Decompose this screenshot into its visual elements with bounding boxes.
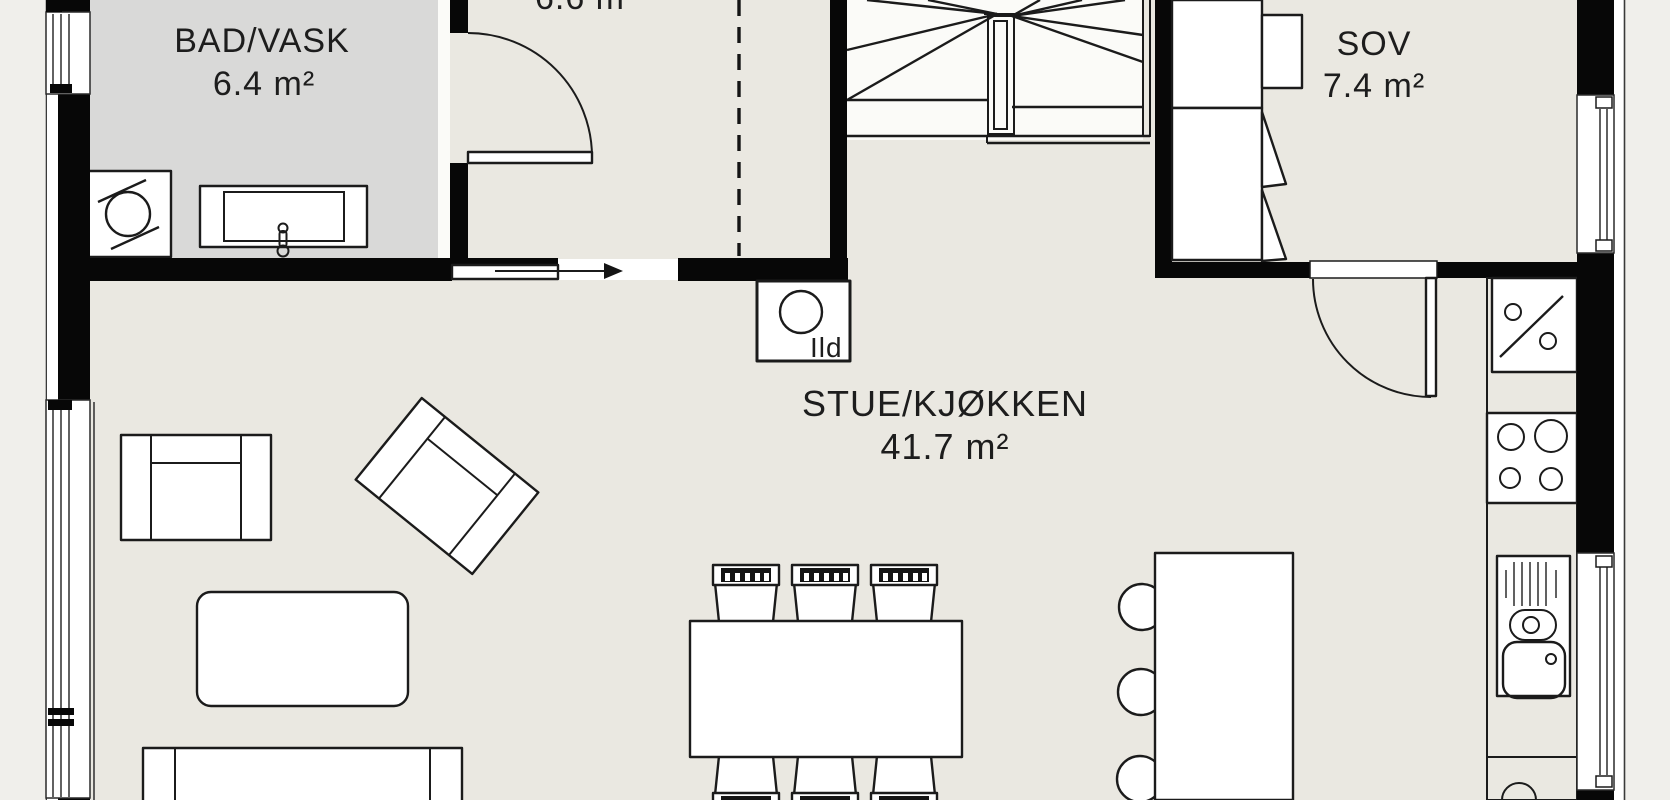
bad-vask-label: BAD/VASK: [174, 22, 350, 60]
wall-segment: [1577, 253, 1614, 553]
window: [1577, 553, 1614, 790]
sov-label: SOV: [1337, 25, 1412, 63]
wall-segment: [1155, 0, 1172, 278]
window-mullion: [48, 708, 74, 715]
wall-cavity: [1614, 0, 1624, 800]
sliding-door: [452, 258, 688, 281]
window-jamb: [1596, 240, 1612, 251]
wall-segment: [1155, 262, 1310, 278]
dining-chair: [713, 565, 779, 622]
wall-segment: [830, 0, 847, 281]
wall-segment: [688, 258, 848, 281]
right-exterior-wall: [1577, 0, 1625, 800]
bad-vask-area: 6.4 m²: [213, 65, 315, 103]
stue-label: STUE/KJØKKEN: [802, 383, 1088, 424]
cooktop-icon: [1487, 413, 1577, 503]
kitchen-sink-icon: [1497, 556, 1570, 698]
wardrobe: [1172, 0, 1262, 108]
door-jamb: [678, 258, 688, 281]
dining-chair: [792, 756, 858, 800]
staircase: [847, 0, 1150, 143]
window: [46, 400, 94, 800]
door-opening: [1310, 261, 1437, 278]
wardrobe-shelf: [1262, 15, 1302, 88]
dining-chair: [871, 756, 937, 800]
wall-segment: [450, 0, 468, 33]
door-leaf: [468, 152, 592, 163]
fireplace: Ild: [757, 281, 850, 363]
kitchen-island: [1155, 553, 1293, 800]
wall-segment: [58, 258, 452, 281]
fireplace-label: Ild: [810, 332, 843, 363]
wall-segment: [1577, 0, 1614, 95]
dining-table: [690, 621, 962, 757]
kitchen-island-group: [1117, 553, 1293, 800]
left-exterior-wall: [46, 0, 94, 800]
wall-segment: [1577, 790, 1614, 800]
wall-segment: [450, 163, 468, 258]
sov-area: 7.4 m²: [1323, 67, 1425, 105]
washing-machine-icon: [88, 171, 171, 257]
floor-plan: BAD/VASK 6.4 m²: [0, 0, 1670, 800]
door-leaf: [1426, 278, 1436, 396]
dining-chair: [792, 565, 858, 622]
closet: [1172, 108, 1262, 260]
window-mullion: [48, 719, 74, 726]
vanity-sink-icon: [200, 186, 367, 257]
window-jamb: [1596, 97, 1612, 108]
coffee-table: [197, 592, 408, 706]
room-bad-vask: BAD/VASK 6.4 m²: [88, 0, 450, 258]
fridge-freezer-icon: [1492, 278, 1577, 372]
dining-chair: [713, 756, 779, 800]
wall-segment: [1437, 262, 1582, 278]
sofa: [143, 748, 462, 800]
window: [46, 0, 90, 94]
hall-area-partial-label: 6.6 m: [535, 0, 625, 17]
floor-plan-drawing: BAD/VASK 6.4 m²: [0, 0, 1670, 800]
dining-group: [690, 565, 962, 800]
armchair: [121, 435, 271, 540]
window: [1577, 95, 1614, 253]
window-jamb: [48, 400, 72, 410]
window-jamb: [1596, 556, 1612, 567]
dining-chair: [871, 565, 937, 622]
stue-area: 41.7 m²: [880, 426, 1009, 467]
window-jamb: [1596, 776, 1612, 787]
door-jamb-strip: [438, 0, 450, 258]
